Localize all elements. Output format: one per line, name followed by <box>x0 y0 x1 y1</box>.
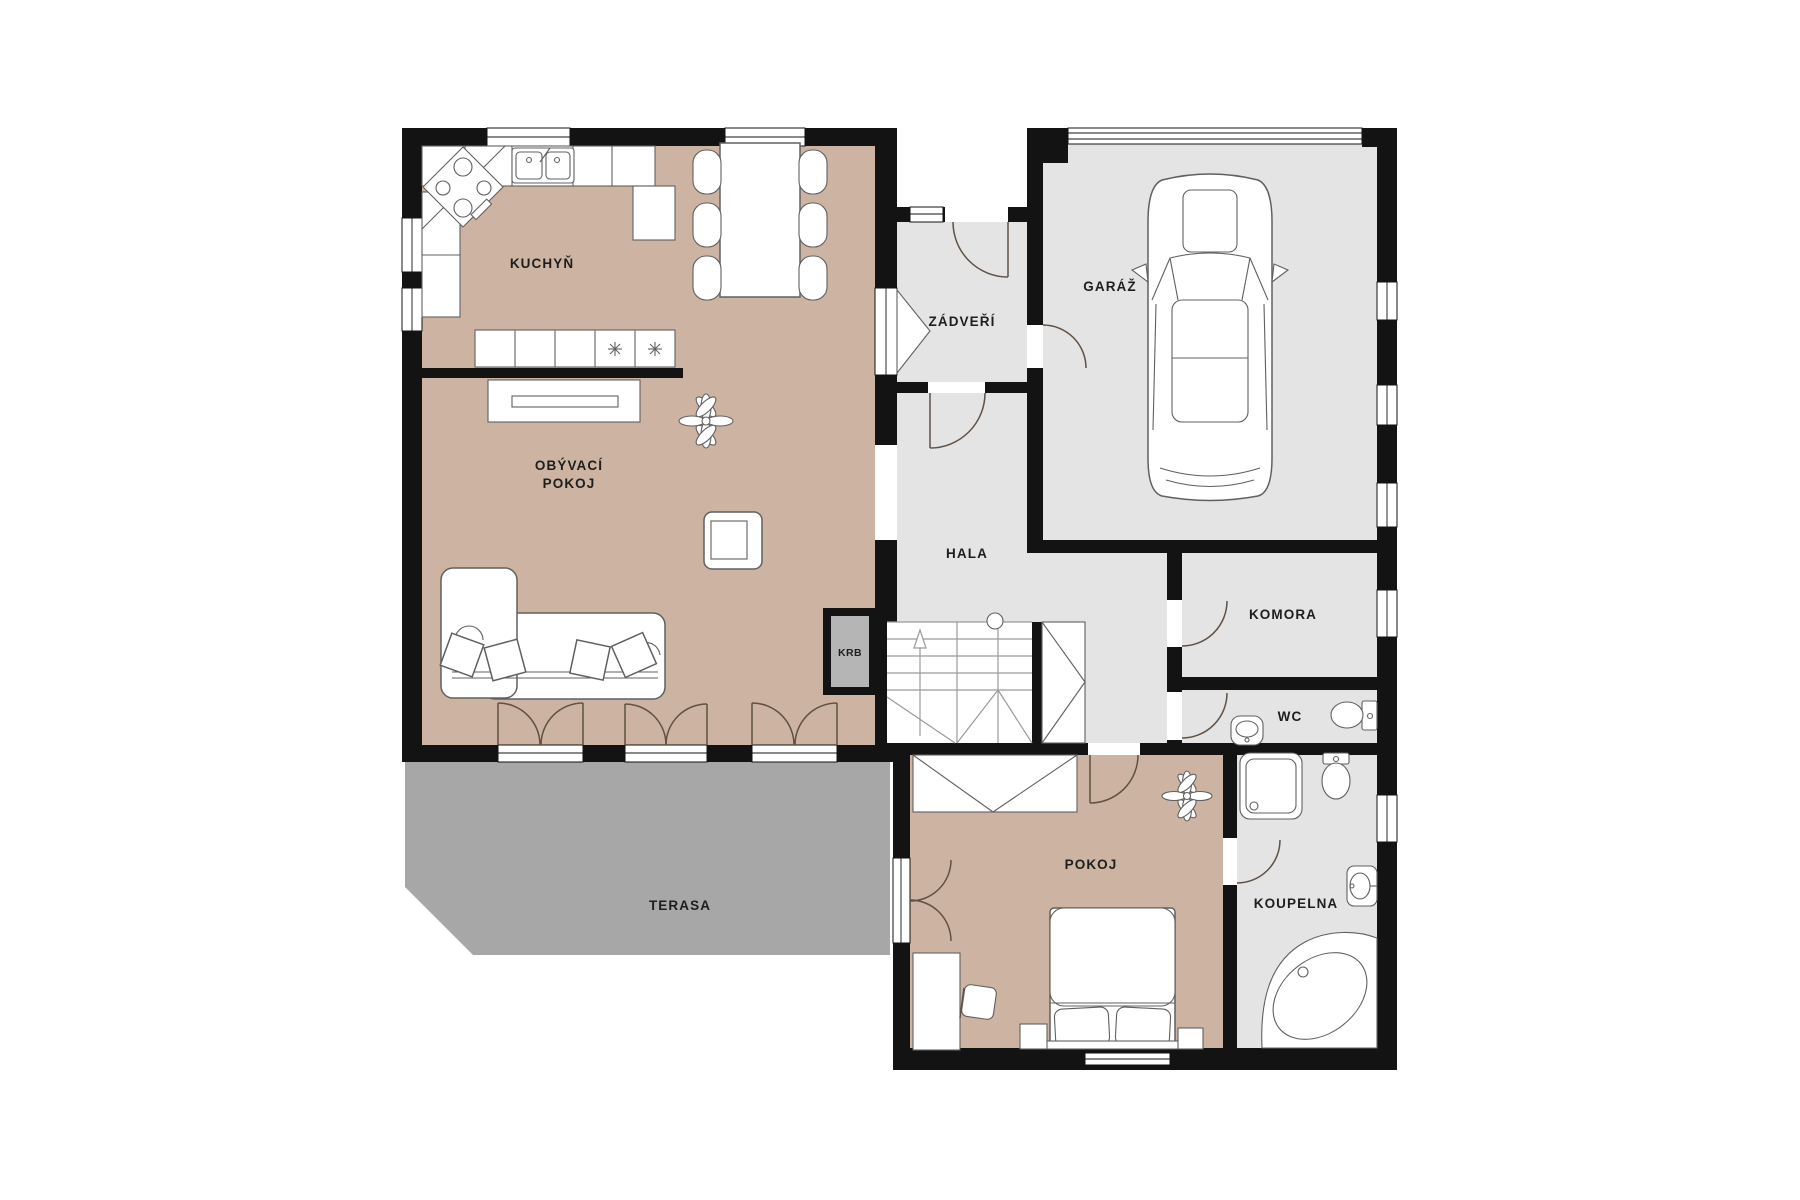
window-icon <box>1085 1053 1170 1065</box>
window-icon <box>910 207 943 222</box>
window-icon <box>1377 483 1397 527</box>
terrace-floor <box>405 762 890 955</box>
stairs-icon <box>887 622 1032 743</box>
car-icon <box>1132 174 1288 501</box>
wardrobe-icon <box>1042 622 1085 743</box>
chair-icon <box>799 150 827 194</box>
washbasin-icon <box>1231 716 1263 745</box>
room-label-hala: HALA <box>946 546 988 561</box>
window-icon <box>487 128 570 146</box>
washbasin-icon <box>1347 866 1377 906</box>
window-icon <box>1377 590 1397 637</box>
room-label-obyvaci-line1: OBÝVACÍ <box>535 458 603 473</box>
floor-plan-page: KUCHYŇ OBÝVACÍ POKOJ ZÁDVEŘÍ GARÁŽ HALA … <box>0 0 1800 1200</box>
room-label-koupelna: KOUPELNA <box>1254 896 1339 911</box>
wc-door-gap <box>1167 692 1182 740</box>
double-sink-icon <box>512 148 574 183</box>
floor-plan-drawing: KUCHYŇ OBÝVACÍ POKOJ ZÁDVEŘÍ GARÁŽ HALA … <box>0 0 1800 1200</box>
room-label-wc: WC <box>1278 709 1303 724</box>
room-label-zadveri: ZÁDVEŘÍ <box>929 314 996 329</box>
kitchen-peninsula-icon <box>475 330 675 367</box>
chair-icon <box>693 203 721 247</box>
nightstand-icon <box>1178 1028 1203 1049</box>
chair-icon <box>693 150 721 194</box>
pillow-icon <box>570 640 610 680</box>
nightstand-icon <box>1020 1024 1047 1049</box>
tv-sideboard-icon <box>488 380 640 422</box>
bedroom-door-gap <box>1088 743 1140 755</box>
balcony-door-icon <box>893 858 910 943</box>
shower-icon <box>1240 753 1302 819</box>
livingroom-hall-passage <box>875 445 897 540</box>
room-label-krb: KRB <box>838 647 862 659</box>
room-label-komora: KOMORA <box>1249 607 1317 622</box>
terrace-door-icon <box>498 745 583 762</box>
entry-hall-door-gap <box>928 382 985 393</box>
window-icon <box>402 288 422 331</box>
toilet-icon <box>1322 753 1350 799</box>
terrace-door-icon <box>752 745 837 762</box>
window-icon <box>1377 385 1397 425</box>
stair-post-icon <box>987 613 1003 629</box>
room-label-obyvaci-line2: POKOJ <box>543 476 596 491</box>
hob-burner-icon <box>608 342 622 356</box>
armchair-icon <box>704 512 762 569</box>
chair-icon <box>799 203 827 247</box>
entry-top-door-gap <box>945 207 1008 222</box>
window-icon <box>1377 795 1397 842</box>
pantry-door-gap <box>1167 600 1182 647</box>
chair-icon <box>693 256 721 300</box>
bed-icon <box>1046 908 1179 1049</box>
room-label-terasa: TERASA <box>649 898 711 913</box>
wardrobe-icon <box>913 755 1077 812</box>
room-label-kuchyn: KUCHYŇ <box>510 256 574 271</box>
window-icon <box>402 218 422 272</box>
entry-garage-door-gap <box>1027 325 1043 368</box>
window-icon <box>1377 282 1397 320</box>
terrace-door-icon <box>625 745 707 762</box>
hob-burner-icon <box>648 342 662 356</box>
dining-table-icon <box>693 143 827 300</box>
room-label-garaz: GARÁŽ <box>1083 279 1137 294</box>
room-label-pokoj: POKOJ <box>1065 857 1118 872</box>
bathroom-door-gap <box>1223 838 1237 885</box>
garage-door-icon <box>1068 128 1362 144</box>
chair-icon <box>799 256 827 300</box>
toilet-icon <box>1331 701 1377 730</box>
hall-stairs <box>887 613 1085 743</box>
